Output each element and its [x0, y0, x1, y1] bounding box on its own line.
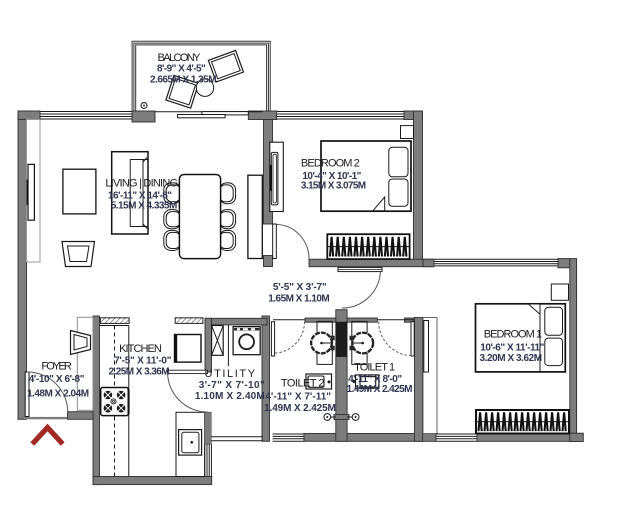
- svg-text:8'-9" X 4'-5": 8'-9" X 4'-5": [157, 64, 206, 75]
- svg-text:10'-6" X 11'-11": 10'-6" X 11'-11": [480, 343, 544, 354]
- svg-text:BEDROOM 2: BEDROOM 2: [301, 158, 360, 170]
- svg-text:5'-5" X 3'-7": 5'-5" X 3'-7": [273, 282, 327, 293]
- svg-text:1.10M X 2.40M: 1.10M X 2.40M: [195, 391, 265, 402]
- svg-text:4'-11" X 7'-11": 4'-11" X 7'-11": [265, 392, 331, 403]
- svg-text:LIVING | DINING: LIVING | DINING: [105, 178, 178, 190]
- svg-text:4'-10" X 6'-8": 4'-10" X 6'-8": [29, 374, 85, 385]
- svg-text:3.20M X 3.62M: 3.20M X 3.62M: [480, 353, 543, 364]
- svg-text:5.15M X 4.335M: 5.15M X 4.335M: [111, 200, 178, 211]
- svg-text:3.15M X 3.075M: 3.15M X 3.075M: [301, 180, 366, 191]
- svg-text:2.25M X 3.36M: 2.25M X 3.36M: [109, 367, 170, 378]
- svg-text:1.65M X 1.10M: 1.65M X 1.10M: [268, 294, 330, 305]
- svg-text:1.48M X 2.04M: 1.48M X 2.04M: [27, 388, 89, 399]
- svg-text:1.49M X 2.425M: 1.49M X 2.425M: [347, 384, 413, 395]
- svg-text:TOILET 1: TOILET 1: [354, 361, 395, 373]
- svg-text:TOILET 2: TOILET 2: [281, 378, 325, 390]
- svg-text:7'-5" X 11'-0": 7'-5" X 11'-0": [114, 355, 172, 366]
- svg-text:BALCONY: BALCONY: [158, 52, 202, 64]
- svg-text:3'-7" X 7'-10": 3'-7" X 7'-10": [199, 380, 265, 391]
- svg-text:UTILITY: UTILITY: [205, 368, 256, 380]
- svg-text:1.49M X 2.425M: 1.49M X 2.425M: [264, 403, 336, 414]
- svg-text:KITCHEN: KITCHEN: [119, 343, 162, 355]
- svg-text:2.665M X 1.35M: 2.665M X 1.35M: [150, 74, 217, 85]
- svg-text:FOYER: FOYER: [41, 360, 72, 372]
- svg-text:BEDROOM 1: BEDROOM 1: [484, 328, 542, 340]
